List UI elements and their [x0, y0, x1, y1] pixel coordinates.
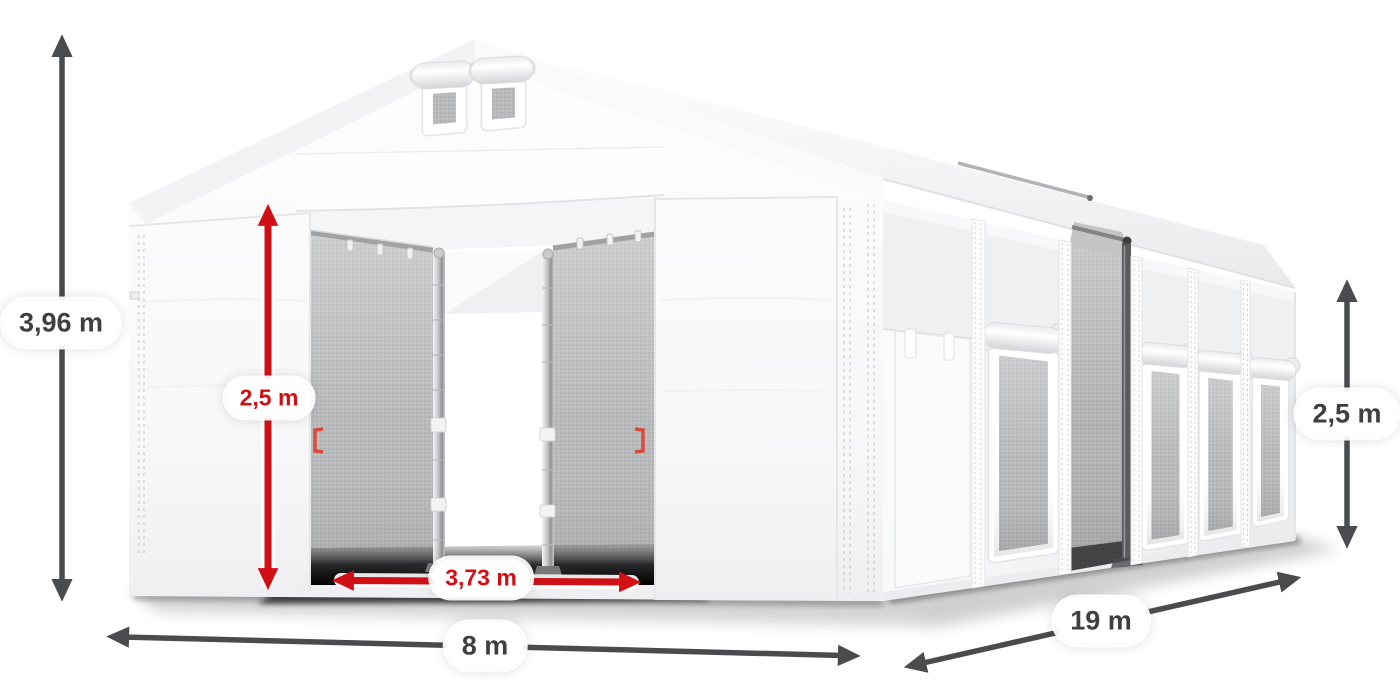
entrance-opening [305, 190, 660, 590]
dimension-label-side-length: 19 m [1055, 599, 1147, 644]
tent-illustration [0, 0, 1400, 700]
dimension-label-door-width: 3,73 m [432, 560, 530, 597]
product-image-canvas: 3,96 m 2,5 m 3,73 m 8 m 19 m 2,5 m [0, 0, 1400, 700]
corner-buckle [130, 292, 139, 299]
dimension-label-front-width: 8 m [447, 624, 524, 669]
side-door-flap [895, 329, 970, 588]
sliding-door-pole [1122, 243, 1131, 561]
dimension-label-side-wall-height: 2,5 m [1297, 392, 1396, 437]
side-window-1 [976, 321, 1070, 557]
dimension-label-total-height: 3,96 m [4, 301, 118, 346]
dimension-label-door-height: 2,5 m [227, 380, 312, 417]
